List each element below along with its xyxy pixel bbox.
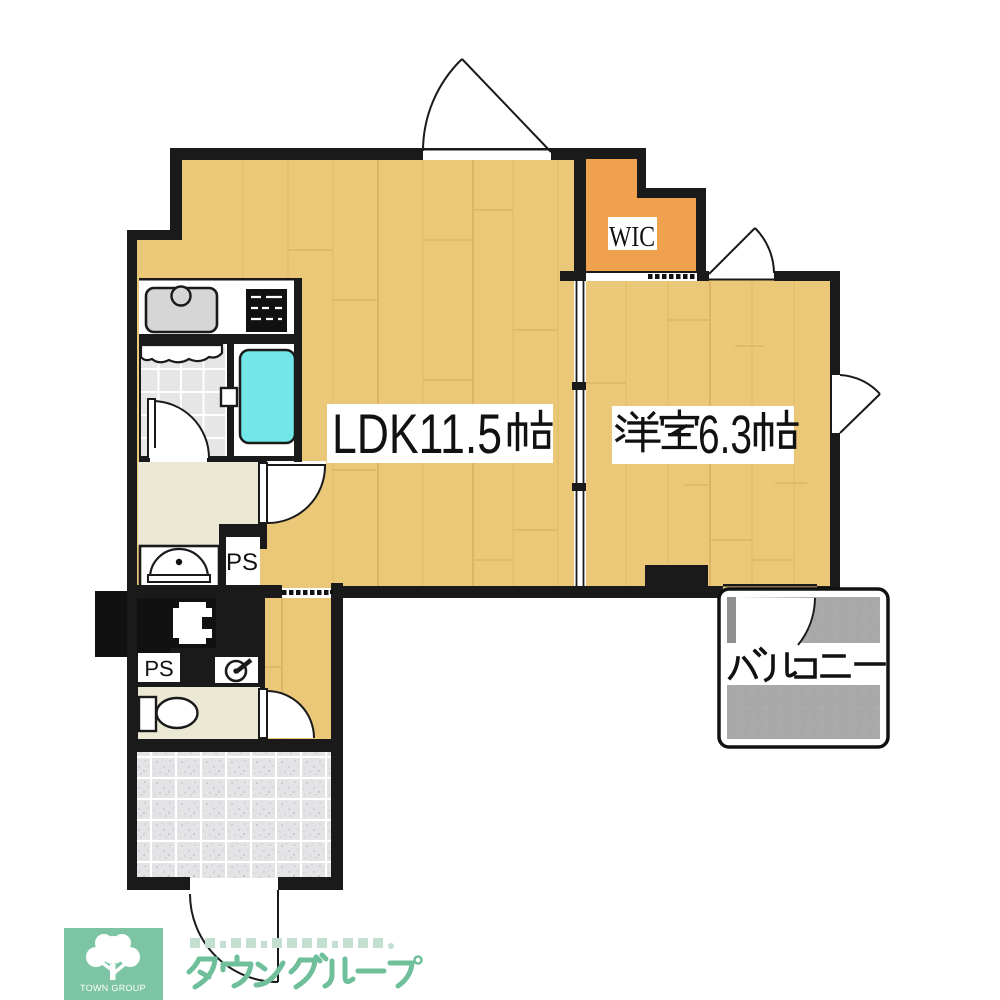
svg-text:TOWN GROUP: TOWN GROUP bbox=[80, 983, 146, 993]
svg-text:WIC: WIC bbox=[609, 221, 655, 253]
svg-text:PS: PS bbox=[226, 549, 258, 576]
svg-text:PS: PS bbox=[144, 656, 173, 681]
svg-text:6.3: 6.3 bbox=[698, 405, 752, 465]
svg-text:LDK11.5: LDK11.5 bbox=[332, 402, 502, 465]
